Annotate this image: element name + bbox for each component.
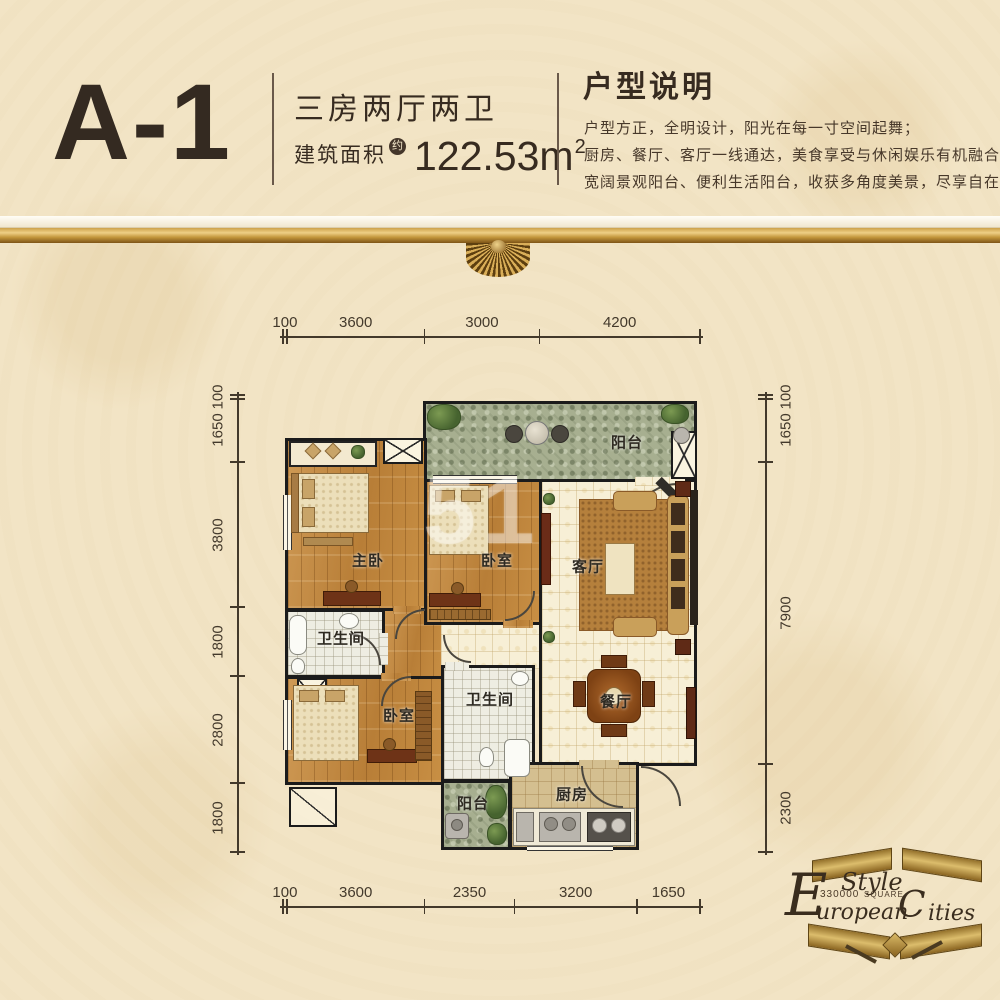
sofa-cushion (671, 503, 685, 525)
dimension-tick (758, 763, 773, 765)
chair (383, 738, 396, 751)
dining-chair (573, 681, 586, 707)
dimension-tick (230, 782, 245, 784)
dimension-label: 3600 (339, 314, 372, 331)
washer-door (451, 819, 463, 831)
header-divider-2 (557, 73, 559, 185)
dimension-line (280, 336, 703, 338)
dimension-tick (636, 899, 638, 914)
pillow (325, 690, 345, 702)
sofa-cushion (671, 559, 685, 581)
bathtub (289, 615, 307, 655)
dimension-tick (230, 461, 245, 463)
balcony-round-table (525, 421, 549, 445)
room-label-bathroom-1: 卫生间 (317, 628, 365, 649)
dimension-label: 4200 (603, 314, 636, 331)
dimension-label: 7900 (778, 596, 795, 629)
plant-icon (661, 404, 689, 424)
dimension-tick (424, 329, 426, 344)
dimension-label: 1800 (210, 801, 227, 834)
description-line: 户型方正，全明设计，阳光在每一寸空间起舞； (584, 117, 920, 138)
room-label-dining-room: 餐厅 (600, 691, 632, 712)
window (283, 700, 292, 750)
dimension-tick (230, 398, 245, 400)
plant-icon (543, 631, 555, 643)
shaft-x-box (383, 438, 423, 464)
dimension-label: 3200 (559, 884, 592, 901)
kitchen-appliance (516, 812, 534, 842)
door-arc (641, 766, 681, 806)
area-label: 建筑面积 (294, 139, 386, 177)
dimension-tick (758, 851, 773, 853)
dimension-chain-top: 100360030004200 (283, 310, 700, 340)
dimension-tick (286, 899, 288, 914)
burner (592, 818, 607, 833)
desk (323, 591, 381, 606)
dimension-label: 1650 (778, 414, 795, 447)
watermark: 51 (423, 457, 541, 566)
logo-cities-initial: C (898, 888, 926, 924)
room-label-balcony-top: 阳台 (611, 432, 643, 453)
logo-number: 330000 (820, 890, 859, 900)
dimension-tick (424, 899, 426, 914)
dimension-tick (230, 675, 245, 677)
armchair (613, 617, 657, 637)
dimension-tick (230, 606, 245, 608)
sink (511, 671, 529, 686)
tv-cabinet (541, 513, 551, 585)
dining-chair (601, 655, 627, 668)
sofa-cushion (671, 531, 685, 553)
unit-code: A-1 (52, 68, 232, 176)
dimension-tick (282, 329, 284, 344)
fan-ornament-disc (491, 240, 506, 253)
door-gap (445, 662, 469, 671)
dimension-label: 3600 (339, 884, 372, 901)
unit-type: 三房两厅两卫 (294, 84, 498, 128)
bed-bench (303, 537, 353, 546)
header-divider-1 (272, 73, 274, 185)
dimension-tick (699, 329, 701, 344)
pillow (299, 690, 319, 702)
dimension-label: 3000 (465, 314, 498, 331)
burner (611, 818, 626, 833)
dimension-label: 100 (210, 384, 227, 409)
dimension-label: 100 (778, 384, 795, 409)
coffee-table (605, 543, 635, 595)
area-row: 建筑面积 约 122.53m 2 (294, 136, 585, 177)
toilet (291, 658, 305, 674)
chair (345, 580, 358, 593)
floor-plan: 阳台 主卧 卧室 客厅 卫生间 卧室 卫生间 餐厅 厨房 阳台 51 (283, 395, 700, 852)
logo-cities-rest: ities (928, 903, 975, 925)
dimension-chain-left: 10016503800180028001800 (206, 395, 240, 852)
armchair (613, 491, 657, 511)
desk (429, 593, 481, 607)
dining-chair (642, 681, 655, 707)
area-value: 122.53m (414, 136, 574, 177)
dimension-tick (539, 329, 541, 344)
room-label-bathroom-2: 卫生间 (466, 689, 514, 710)
dimension-tick (514, 899, 516, 914)
dimension-label: 1650 (210, 414, 227, 447)
door-gap (503, 620, 533, 628)
description-line: 厨房、餐厅、客厅一线通达，美食享受与休闲娱乐有机融合； (584, 144, 1000, 165)
side-table (675, 639, 691, 655)
dimension-tick (230, 394, 245, 396)
dimension-chain-right: 100165079002300 (762, 395, 796, 852)
room-label-kitchen: 厨房 (556, 784, 588, 805)
dimension-tick (699, 899, 701, 914)
balcony-chair (505, 425, 523, 443)
dimension-label: 2800 (210, 713, 227, 746)
room-label-bedroom-bottom: 卧室 (383, 705, 415, 726)
dimension-label: 3800 (210, 518, 227, 551)
plant-icon (351, 445, 365, 459)
plant-icon (487, 823, 507, 845)
balcony-chair (551, 425, 569, 443)
description-line: 宽阔景观阳台、便利生活阳台，收获多角度美景，尽享自在高贵人生。 (584, 171, 1000, 192)
brand-logo: E Style 330000 SQUARE uropean C ities (780, 840, 1000, 980)
toilet (479, 747, 494, 767)
room-label-balcony-bottom: 阳台 (457, 793, 489, 814)
ac-platform-box (289, 787, 337, 827)
dimension-tick (758, 394, 773, 396)
pillow (302, 507, 315, 527)
wardrobe (415, 691, 432, 761)
divider-white-strip (0, 216, 1000, 228)
dimension-label: 100 (272, 884, 297, 901)
sideboard-cabinet (686, 687, 696, 739)
sink-bowl (562, 817, 576, 831)
flower-pot (673, 427, 690, 444)
dining-chair (601, 724, 627, 737)
dimension-tick (758, 461, 773, 463)
sofa-cushion (671, 587, 685, 609)
room-label-master-bedroom: 主卧 (352, 550, 384, 571)
floorplan-page: A-1 三房两厅两卫 建筑面积 约 122.53m 2 户型说明 户型方正，全明… (0, 0, 1000, 1000)
wardrobe (429, 609, 491, 620)
dimension-chain-bottom: 1003600235032001650 (283, 880, 700, 910)
dimension-tick (286, 329, 288, 344)
description-title: 户型说明 (583, 62, 715, 106)
chair (451, 582, 464, 595)
window-dark-band (690, 490, 698, 625)
dimension-tick (282, 899, 284, 914)
plant-icon (427, 404, 461, 430)
dimension-tick (758, 398, 773, 400)
dimension-line (280, 906, 703, 908)
room-label-living-room: 客厅 (572, 556, 604, 577)
desk (367, 749, 417, 763)
plant-icon (543, 493, 555, 505)
ribbon-top-right (902, 848, 982, 883)
dimension-label: 1800 (210, 625, 227, 658)
approx-badge: 约 (389, 138, 406, 155)
dimension-tick (230, 851, 245, 853)
dimension-label: 100 (272, 314, 297, 331)
sink-bowl (544, 817, 558, 831)
dimension-label: 2350 (453, 884, 486, 901)
dimension-label: 1650 (652, 884, 685, 901)
ribbon-bottom-left (808, 924, 890, 960)
logo-european-rest: uropean (816, 902, 908, 924)
bed-headboard (291, 473, 299, 533)
pillow (302, 479, 315, 499)
dimension-label: 2300 (778, 791, 795, 824)
side-table (675, 481, 691, 497)
shower-tub (504, 739, 530, 777)
